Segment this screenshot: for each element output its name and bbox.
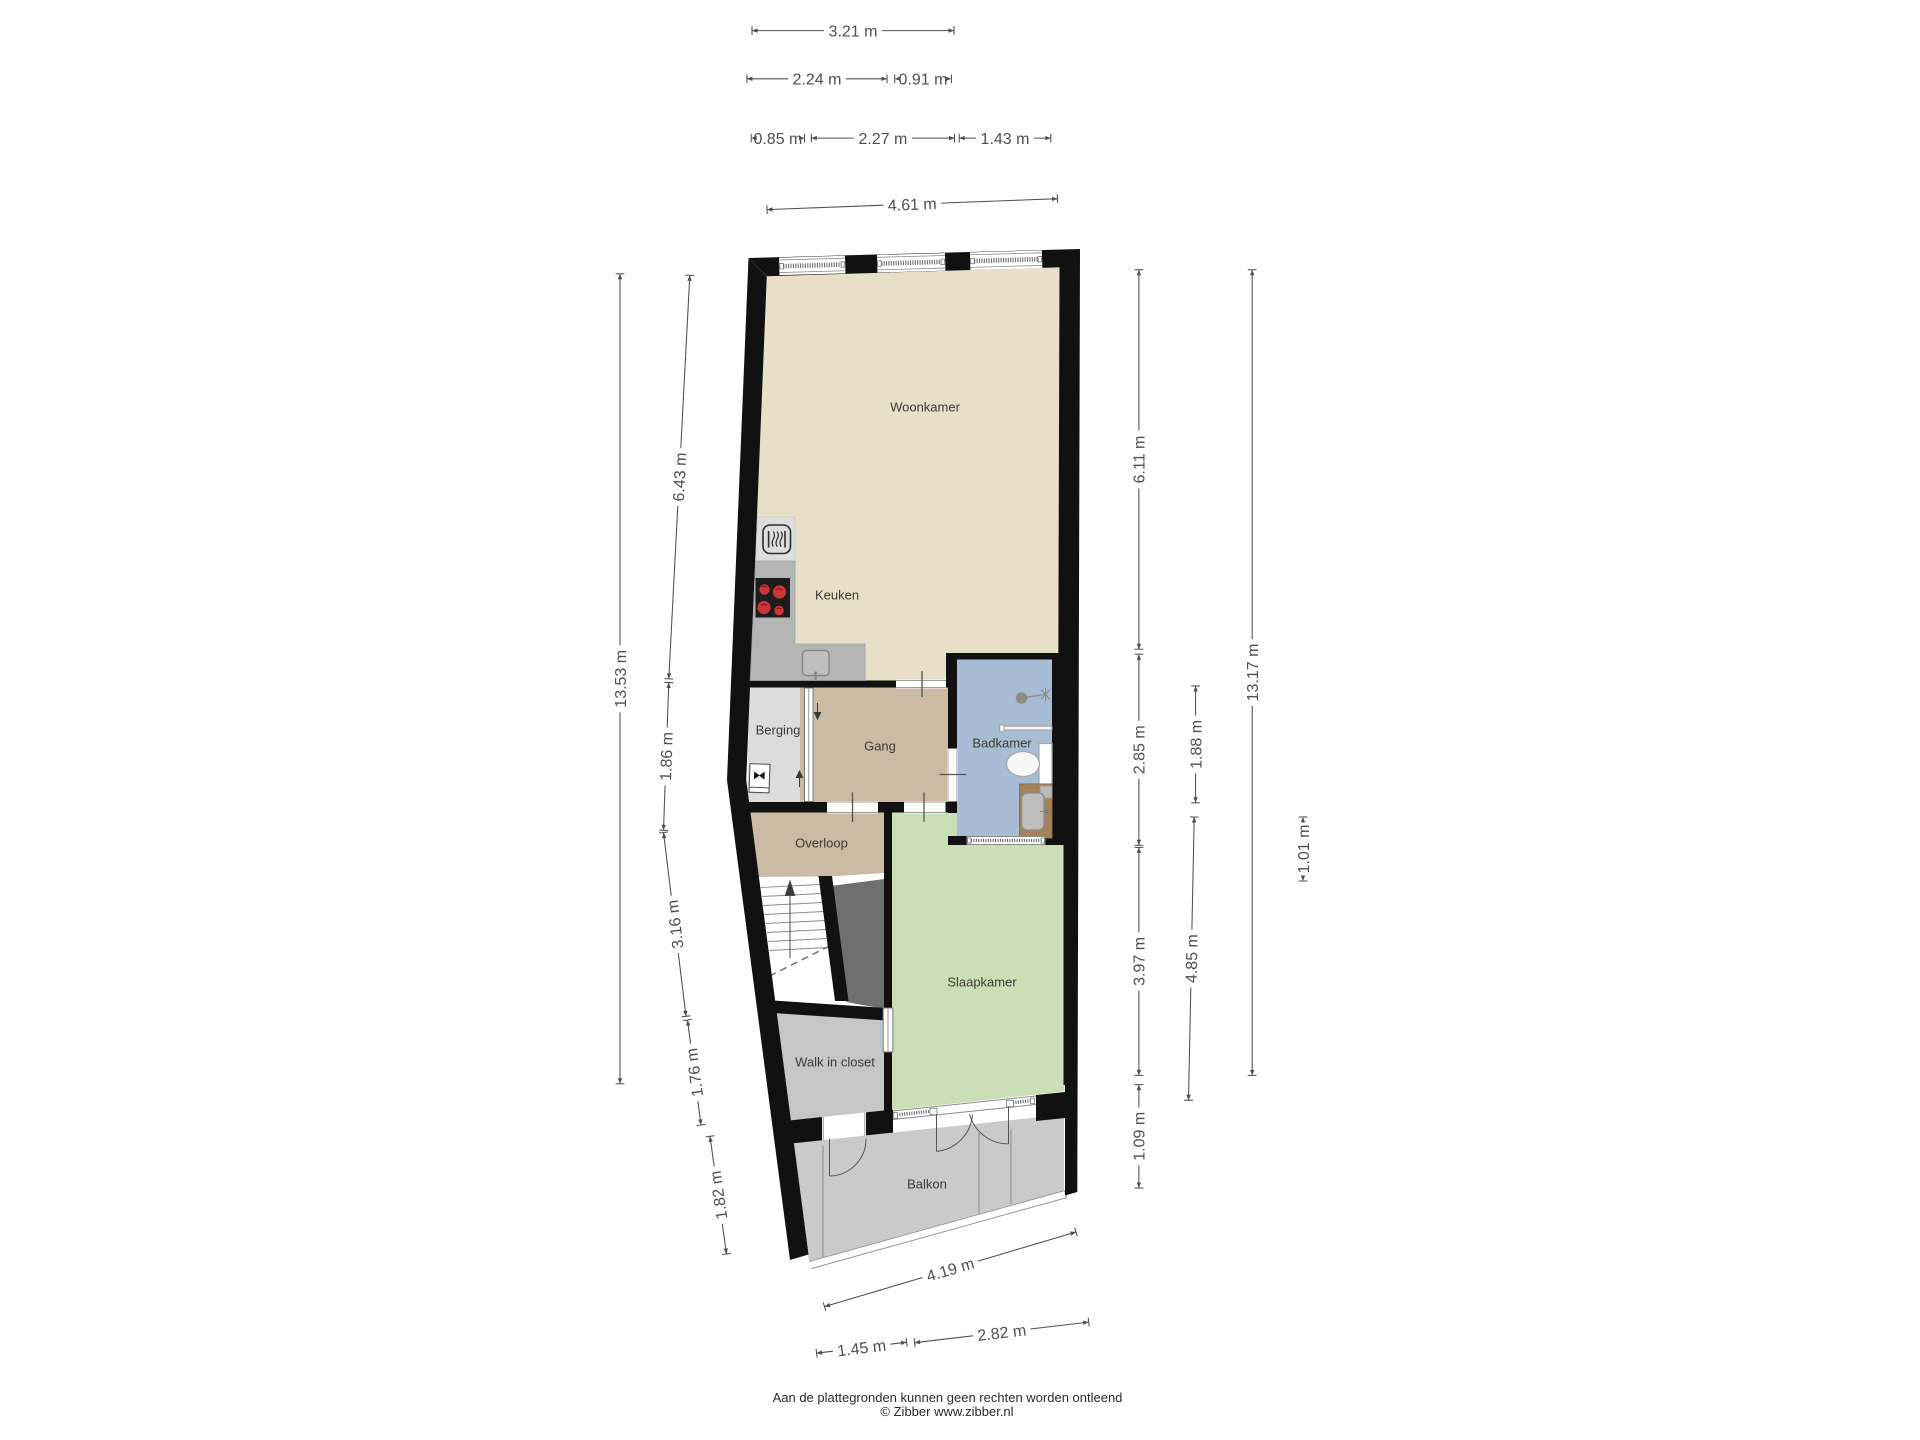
svg-text:2.85 m: 2.85 m	[1132, 725, 1149, 774]
svg-text:3.21 m: 3.21 m	[829, 23, 878, 40]
svg-text:13.17 m: 13.17 m	[1245, 644, 1262, 702]
svg-text:2.27 m: 2.27 m	[858, 131, 907, 148]
svg-text:Overloop: Overloop	[795, 836, 848, 851]
svg-text:Woonkamer: Woonkamer	[890, 400, 961, 415]
svg-text:3.97 m: 3.97 m	[1132, 937, 1149, 986]
svg-text:Walk in closet: Walk in closet	[795, 1055, 875, 1070]
svg-text:6.11 m: 6.11 m	[1132, 436, 1149, 484]
svg-text:4.61 m: 4.61 m	[887, 196, 937, 215]
svg-text:13.53 m: 13.53 m	[613, 650, 630, 708]
svg-text:1.86 m: 1.86 m	[658, 732, 677, 781]
svg-text:© Zibber www.zibber.nl: © Zibber www.zibber.nl	[880, 1404, 1013, 1419]
svg-text:Berging: Berging	[756, 723, 801, 738]
svg-text:Gang: Gang	[864, 739, 896, 754]
svg-text:0.85 m: 0.85 m	[753, 131, 802, 148]
svg-text:1.43 m: 1.43 m	[981, 131, 1030, 148]
svg-text:Aan de plattegronden kunnen ge: Aan de plattegronden kunnen geen rechten…	[773, 1390, 1123, 1405]
svg-text:1.01 m: 1.01 m	[1296, 825, 1313, 874]
svg-text:0.91 m: 0.91 m	[899, 72, 948, 89]
svg-text:4.85 m: 4.85 m	[1184, 934, 1202, 983]
svg-text:Keuken: Keuken	[815, 588, 859, 603]
svg-text:2.24 m: 2.24 m	[793, 72, 842, 89]
svg-text:1.88 m: 1.88 m	[1188, 720, 1205, 769]
svg-text:1.09 m: 1.09 m	[1132, 1112, 1149, 1161]
svg-text:Balkon: Balkon	[907, 1177, 947, 1192]
svg-text:6.43 m: 6.43 m	[671, 452, 691, 502]
svg-text:Badkamer: Badkamer	[972, 736, 1032, 751]
svg-text:Slaapkamer: Slaapkamer	[947, 975, 1017, 990]
